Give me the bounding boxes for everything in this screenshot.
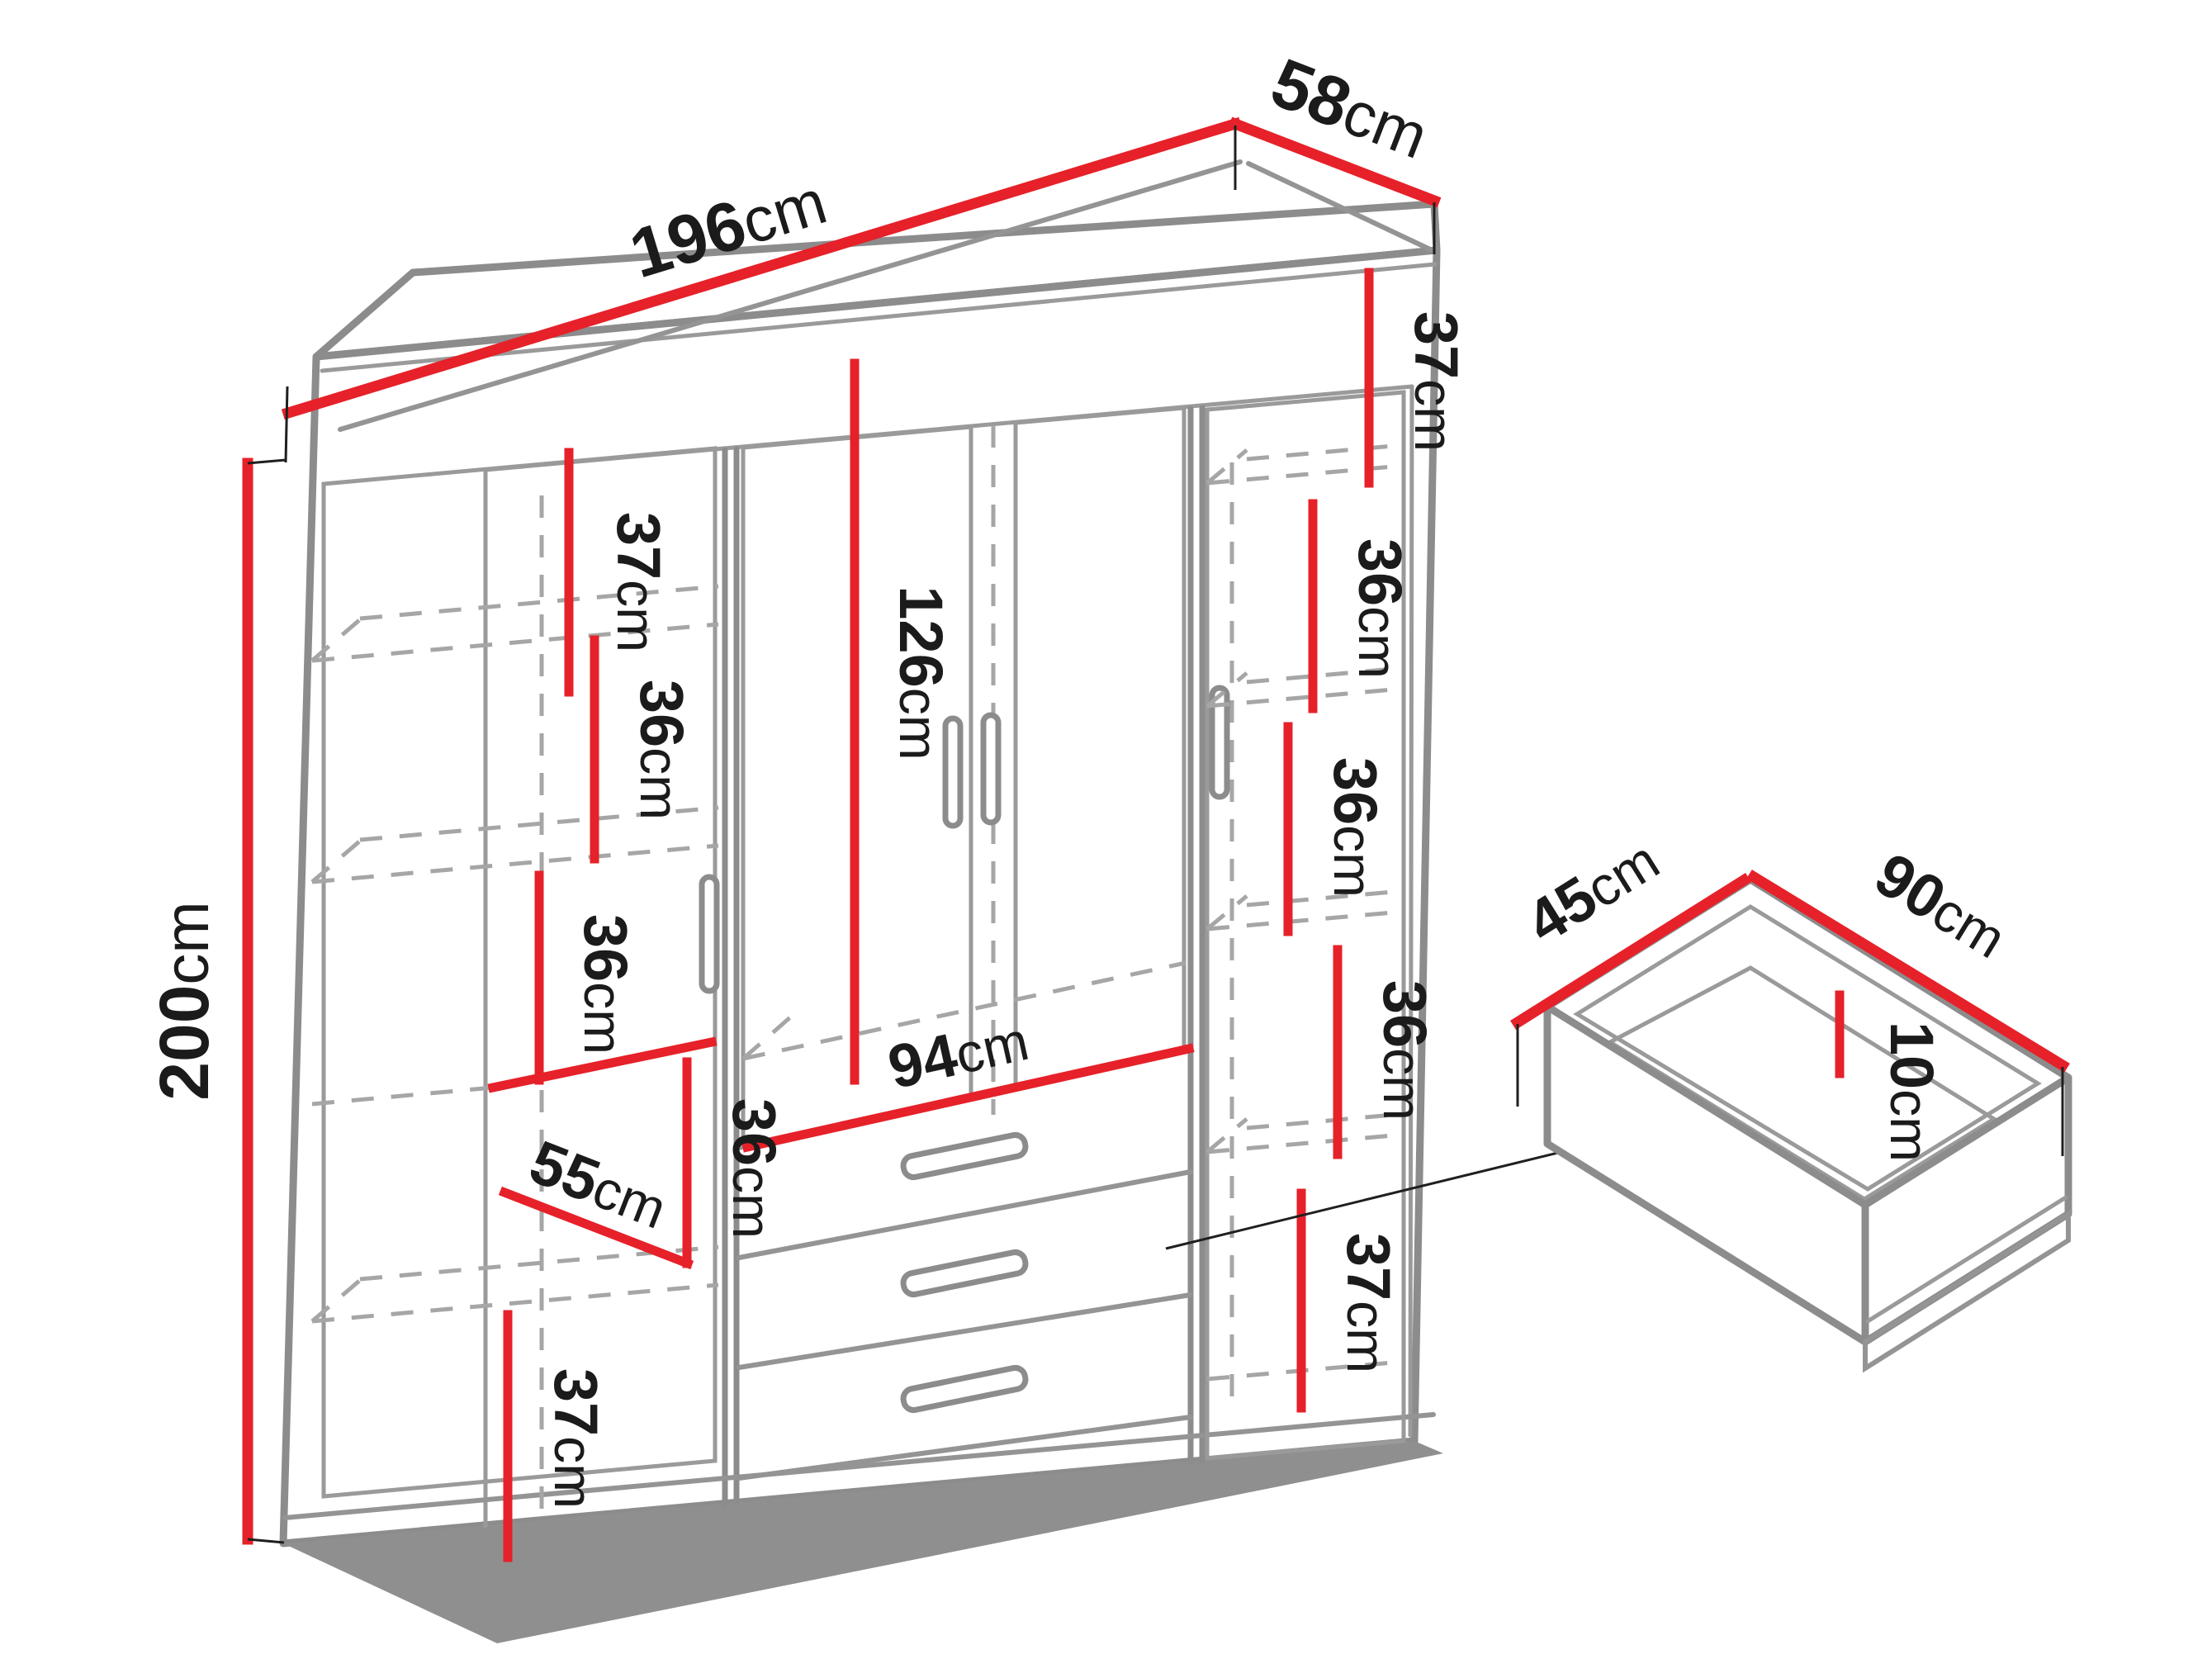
left-dim-label-36-b: 36cm bbox=[571, 914, 640, 1055]
wardrobe bbox=[283, 162, 1443, 1643]
tick-mark bbox=[248, 460, 286, 463]
left-door-handle bbox=[702, 877, 717, 991]
center-right-door-handle bbox=[983, 715, 998, 822]
left-dim-label-36-a: 36cm bbox=[628, 680, 696, 820]
right-dim-label-37-top: 37cm bbox=[1402, 311, 1471, 452]
left-dim-label-37-bottom: 37cm bbox=[542, 1368, 610, 1509]
tick-mark bbox=[286, 386, 287, 462]
drawer-width-dimension-label: 90cm bbox=[1864, 839, 2020, 971]
height-dimension-label: 200cm bbox=[145, 901, 223, 1100]
left-dim-label-36-c: 36cm bbox=[720, 1098, 789, 1239]
wardrobe-dimension-diagram: 196cm 58cm 200cm 37cm 36cm 36cm 36cm 55c… bbox=[0, 0, 2212, 1659]
right-dim-label-37-bottom: 37cm bbox=[1334, 1233, 1403, 1373]
depth-dimension-label: 58cm bbox=[1262, 43, 1440, 173]
right-dim-label-36-c: 36cm bbox=[1371, 980, 1439, 1121]
left-dim-label-37-top: 37cm bbox=[604, 512, 673, 652]
drawer-height-dimension-label: 10cm bbox=[1878, 1021, 1946, 1162]
center-dim-label-126: 126cm bbox=[887, 585, 955, 760]
tick-mark bbox=[248, 1539, 284, 1543]
right-dim-label-36-a: 36cm bbox=[1346, 538, 1414, 679]
diagram-svg: 196cm 58cm 200cm 37cm 36cm 36cm 36cm 55c… bbox=[0, 0, 2212, 1659]
right-dim-label-36-b: 36cm bbox=[1321, 757, 1390, 898]
